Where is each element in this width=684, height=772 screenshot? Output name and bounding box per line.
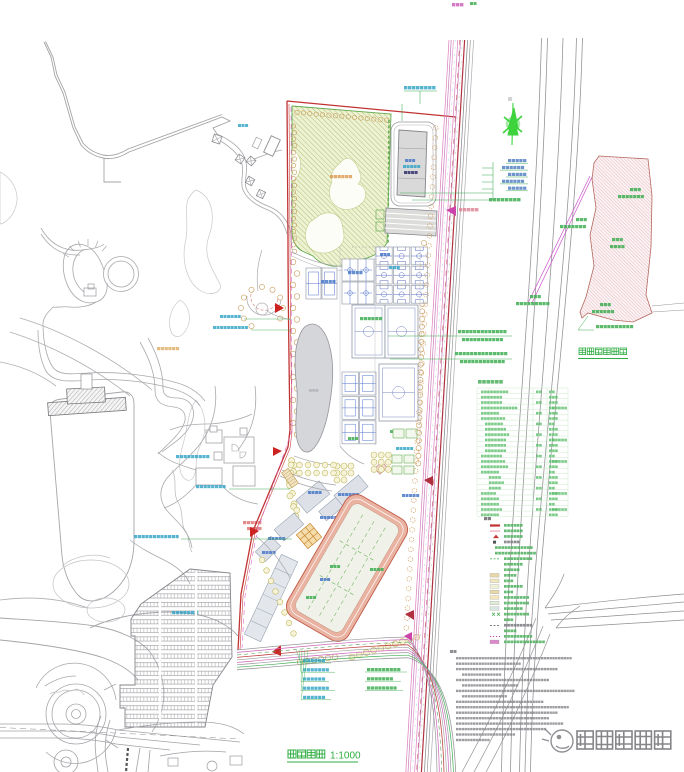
svg-text:1:1000: 1:1000 [330, 751, 361, 762]
